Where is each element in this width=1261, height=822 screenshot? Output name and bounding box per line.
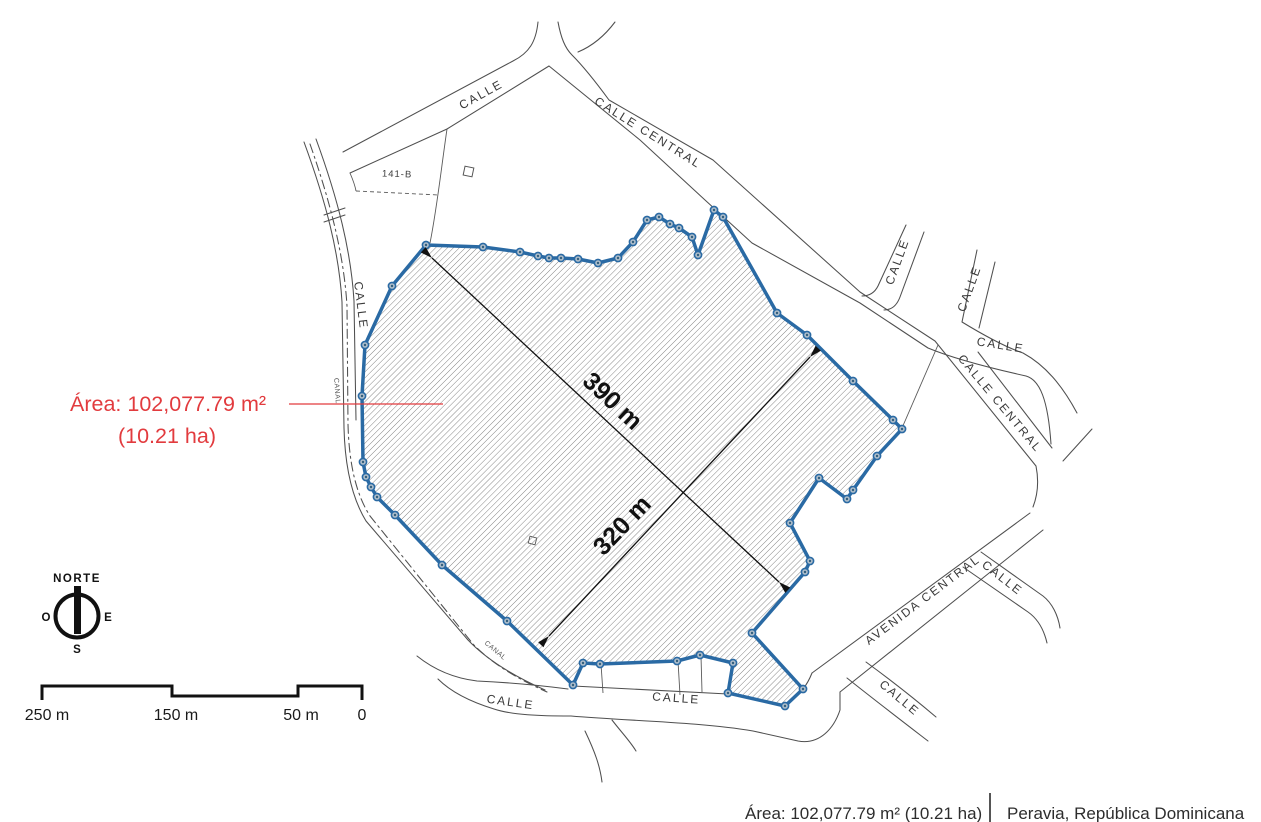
parcel-vertex-center (597, 262, 599, 264)
scale-label-50: 50 m (283, 707, 319, 724)
footer-divider (989, 793, 991, 822)
parcel-vertex-center (804, 571, 806, 573)
area-callout-line1: Área: 102,077.79 m² (70, 391, 266, 416)
parcel-vertex-center (548, 257, 550, 259)
footer-location-text: Peravia, República Dominicana (1007, 804, 1244, 822)
parcel-vertex-center (691, 236, 693, 238)
parcel-vertex-center (876, 455, 878, 457)
parcel-vertex-center (506, 620, 508, 622)
parcel-vertex-center (617, 257, 619, 259)
scale-label-0: 0 (358, 707, 367, 724)
parcel-vertex-center (582, 662, 584, 664)
compass-west-label: O (42, 612, 51, 624)
street-label-calle-east: CALLE (976, 334, 1026, 355)
parcel-vertex-center (632, 241, 634, 243)
parcel-vertex-center (365, 476, 367, 478)
street-label-calle-central-east: CALLE CENTRAL (955, 352, 1045, 456)
parcel-vertex-center (901, 428, 903, 430)
parcel-vertex-center (537, 255, 539, 257)
compass-north-label: NORTE (53, 573, 101, 585)
street-label-calle-southeast-upper: CALLE (979, 558, 1025, 599)
scale-label-250: 250 m (25, 707, 69, 724)
parcel-vertex-center (809, 560, 811, 562)
parcel-vertex-center (722, 216, 724, 218)
parcel-vertex-center (441, 564, 443, 566)
parcel-vertex-center (669, 223, 671, 225)
parcel-vertex-center (364, 344, 366, 346)
parcel-vertex-center (394, 514, 396, 516)
parcel-vertex-center (376, 496, 378, 498)
parcel-vertex-center (482, 246, 484, 248)
parcel-vertex-center (802, 688, 804, 690)
parcel-vertex-center (776, 312, 778, 314)
parcel-vertex-center (852, 489, 854, 491)
scale-label-150: 150 m (154, 707, 198, 724)
street-label-calle-central-top: CALLE CENTRAL (592, 94, 704, 171)
parcel-vertex-center (789, 522, 791, 524)
parcel-vertex-center (370, 486, 372, 488)
parcel-vertex-center (362, 461, 364, 463)
parcel-vertex-center (678, 227, 680, 229)
parcel-vertex-center (519, 251, 521, 253)
parcel-vertex-center (846, 498, 848, 500)
parcel-vertex-center (560, 257, 562, 259)
street-label-calle-northeast-1: CALLE (882, 237, 912, 287)
street-label-calle-bottom-center: CALLE (652, 689, 701, 706)
footer-area-text: Área: 102,077.79 m² (10.21 ha) (745, 804, 982, 822)
parcel-vertex-center (658, 216, 660, 218)
compass-rose: NORTE O E S (42, 573, 113, 656)
compass-south-label: S (73, 644, 81, 656)
parcel-vertex-center (425, 244, 427, 246)
street-label-calle-northeast-2: CALLE (954, 264, 984, 314)
parcel-vertex-center (784, 705, 786, 707)
parcel-vertex-center (697, 254, 699, 256)
street-label-calle-southeast-lower: CALLE (877, 677, 923, 719)
site-plan-map: 390 m 320 m CALLE CALLE CENTRAL CALLE CA… (0, 0, 1261, 822)
parcel-vertex-center (751, 632, 753, 634)
parcel-vertex-center (727, 692, 729, 694)
area-callout-line2: (10.21 ha) (118, 424, 216, 448)
street-label-canal-west: CANAL (332, 378, 341, 404)
lot-code-label: 141-B (382, 168, 413, 180)
scale-bar-line (42, 686, 362, 700)
parcel-vertex-center (852, 380, 854, 382)
parcel-vertex-center (732, 662, 734, 664)
parcel-vertex-center (599, 663, 601, 665)
parcel-vertex-center (577, 258, 579, 260)
parcel-vertex-center (646, 219, 648, 221)
parcel-vertex-center (572, 684, 574, 686)
parcel-vertex-center (699, 654, 701, 656)
compass-east-label: E (104, 612, 112, 624)
parcel-vertex-center (806, 334, 808, 336)
street-label-canal-south: CANAL (483, 640, 507, 662)
parcel (358, 206, 905, 709)
parcel-boundary (362, 210, 902, 706)
parcel-vertex-center (391, 285, 393, 287)
parcel-vertex-center (892, 419, 894, 421)
street-label-avenida-central: AVENIDA CENTRAL (862, 552, 983, 648)
street-label-calle-top-left: CALLE (457, 77, 506, 113)
building-outline (463, 166, 474, 177)
parcel-vertex-center (713, 209, 715, 211)
scale-bar: 250 m 150 m 50 m 0 (25, 686, 367, 724)
parcel-vertex-center (818, 477, 820, 479)
parcel-vertex-center (676, 660, 678, 662)
site-plan-page: 390 m 320 m CALLE CALLE CENTRAL CALLE CA… (0, 0, 1261, 822)
parcel-vertex-center (361, 395, 363, 397)
